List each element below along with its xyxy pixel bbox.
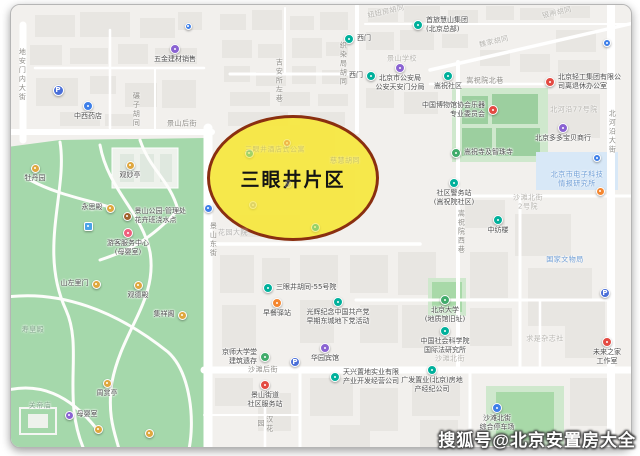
map-poi-marker[interactable]: [260, 380, 270, 390]
map-poi-label: 北京多多宝贝商行: [517, 134, 609, 143]
area-label: 慈慧胡同: [330, 157, 360, 166]
map-poi-marker[interactable]: [92, 280, 101, 289]
map-poi-label: 首旅慧山集团 (北京总部): [426, 16, 518, 34]
map-poi-label: 牡丹园: [10, 174, 81, 183]
map-poi-label: 周赏亭: [61, 389, 153, 398]
map-poi-marker[interactable]: [596, 187, 605, 196]
map-poi-marker[interactable]: [311, 223, 320, 232]
area-label: 景山学校: [387, 55, 417, 64]
map-poi-label: 未来之家 工作室: [561, 348, 632, 366]
street-label: 嵩祝院西巷: [457, 210, 466, 255]
map-poi-marker[interactable]: [320, 343, 330, 353]
map-canvas[interactable]: 三眼井片区 五金建材销售P中西药店西门首旅慧山集团 (北京总部)西门北京市公安局…: [10, 4, 632, 448]
map-poi-marker[interactable]: [603, 39, 611, 47]
map-poi-marker[interactable]: [123, 228, 133, 238]
map-poi-label: 观德殿: [92, 291, 184, 300]
parking-icon[interactable]: P: [53, 85, 64, 96]
watermark: 搜狐号@北京安置房大全: [438, 426, 636, 451]
map-poi-marker[interactable]: [451, 148, 461, 158]
map-poi-label: 西门: [357, 34, 449, 43]
map-poi-marker[interactable]: [545, 77, 555, 87]
map-poi-marker[interactable]: [145, 429, 154, 438]
map-poi-marker[interactable]: [427, 365, 437, 375]
map-poi-marker[interactable]: [106, 204, 115, 213]
map-poi-marker[interactable]: [284, 180, 292, 188]
street-label: 北河沿大街: [608, 110, 617, 155]
highlight-label: 三眼井片区: [240, 165, 345, 192]
highlight-ellipse: 三眼井片区: [207, 115, 379, 241]
map-poi-label: 社区警务站 (嵩祝院社区): [408, 189, 500, 207]
street-label: 景山后街: [167, 120, 197, 129]
map-poi-marker[interactable]: [488, 105, 498, 115]
map-poi-marker[interactable]: [333, 297, 343, 307]
map-poi-label: 中国博物馆协会乐器 专业委员会: [393, 101, 485, 119]
area-label: 寿皇殿: [22, 326, 45, 335]
map-poi-marker[interactable]: [103, 379, 112, 388]
map-poi-marker[interactable]: [443, 71, 453, 81]
map-poi-marker[interactable]: [602, 337, 612, 347]
map-poi-label: 中纺楼: [452, 226, 544, 235]
map-poi-label: 嵩祝寺及智珠寺: [464, 148, 556, 157]
map-poi-marker[interactable]: [65, 411, 74, 420]
map-poi-label: 母婴室: [77, 410, 169, 419]
map-poi-label: 游客服务中心 (母婴室): [82, 239, 174, 257]
area-label: 北河沿77号院: [550, 106, 597, 115]
area-label: 北京市电子科技 情报研究所: [551, 170, 604, 188]
map-poi-label: 永思殿: [11, 203, 103, 212]
map-poi-marker[interactable]: [170, 44, 180, 54]
map-poi-marker[interactable]: [123, 212, 132, 221]
map-poi-label: 集祥阁: [83, 310, 175, 319]
area-label: 国家文物局: [546, 256, 584, 265]
map-poi-marker[interactable]: [260, 352, 270, 362]
area-label: 三眼井酒店式公寓: [245, 146, 305, 155]
map-poi-marker[interactable]: [31, 164, 40, 173]
map-poi-marker[interactable]: [272, 298, 282, 308]
map-poi-marker[interactable]: [440, 326, 450, 336]
map-poi-marker[interactable]: [185, 23, 192, 30]
map-poi-label: 广发置业(北京)房地 产经纪公司: [386, 376, 478, 394]
map-poi-label: 华园宾馆: [279, 354, 371, 363]
map-poi-label: 三眼井胡同-55号院: [276, 283, 368, 292]
map-poi-marker[interactable]: [178, 311, 187, 320]
map-poi-label: 北京轻工集团有限公 司离退休办公室: [558, 73, 632, 91]
map-poi-marker[interactable]: [330, 372, 340, 382]
street-label: 汉花园: [256, 413, 274, 436]
street-label: 碾子胡同: [132, 92, 141, 128]
map-poi-marker[interactable]: [558, 123, 568, 133]
area-label: 求是杂志社: [526, 335, 564, 344]
map-poi-label: 北京大学 (地质馆旧址): [399, 306, 491, 324]
map-poi-marker[interactable]: [126, 161, 135, 170]
map-poi-marker[interactable]: [263, 283, 273, 293]
map-poi-marker[interactable]: [249, 201, 257, 209]
map-poi-label: 京师大学堂 建筑遗存: [165, 348, 257, 366]
map-poi-marker[interactable]: [94, 425, 103, 434]
street-label: 景山东街: [209, 222, 218, 258]
map-poi-marker[interactable]: [449, 178, 459, 188]
map-poi-marker[interactable]: [83, 101, 93, 111]
street-label: 地安门内大街: [18, 48, 27, 102]
street-label: 嵩祝院北巷: [466, 77, 504, 86]
map-poi-label: 光辉纪念中国共产党 早期东城地下党活动: [292, 308, 384, 326]
area-label: 关帝庙: [29, 402, 52, 411]
map-poi-marker[interactable]: [440, 295, 450, 305]
map-poi-label: 山左里门: [10, 279, 89, 288]
map-poi-label: 观妙亭: [84, 171, 176, 180]
area-label: 沙滩北街: [435, 355, 465, 364]
map-poi-label: 西门: [271, 71, 363, 80]
map-poi-label: 五金建材销售: [129, 55, 221, 64]
map-poi-marker[interactable]: [593, 154, 601, 162]
parking-icon[interactable]: P: [600, 288, 610, 298]
map-poi-marker[interactable]: [413, 20, 423, 30]
map-poi-marker[interactable]: [134, 281, 143, 290]
map-poi-marker[interactable]: [493, 215, 503, 225]
map-poi-label: 中国社会科学院 国际法研究所: [399, 337, 491, 355]
map-poi-label: 中西药店: [42, 112, 134, 121]
area-label: 花园大院: [218, 229, 248, 238]
map-poi-label: 景山街道 社区服务站: [219, 391, 311, 409]
street-label: 吉安所左巷: [275, 59, 284, 104]
street-label: 沙滩后街: [248, 366, 278, 375]
street-label: 织染局胡同: [339, 42, 348, 87]
map-poi-marker[interactable]: [395, 63, 405, 73]
map-poi-marker[interactable]: [84, 222, 93, 231]
area-label: 沙滩北街 2号院: [513, 193, 543, 211]
map-poi-marker[interactable]: [492, 403, 502, 413]
